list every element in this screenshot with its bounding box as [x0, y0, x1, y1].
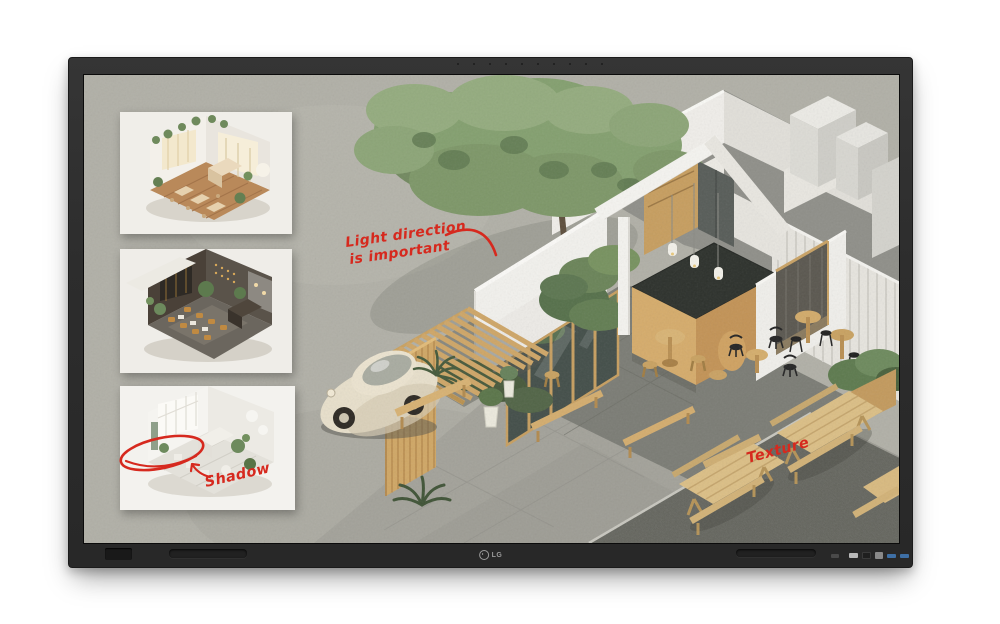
- lg-logo: LG: [479, 550, 503, 560]
- lan-port-icon: [875, 552, 883, 559]
- usb3-port-icon: [900, 554, 909, 558]
- pen-tray-left: [169, 549, 247, 558]
- lg-interactive-display: CAFE: [68, 57, 913, 568]
- thumbnail-white-minimal-interior-render[interactable]: [120, 386, 295, 510]
- pen-tray-right: [736, 549, 816, 557]
- lg-logo-text: LG: [492, 552, 503, 559]
- usb-port-icon: [849, 553, 858, 558]
- power-button[interactable]: [831, 554, 839, 558]
- ir-sensor: [105, 548, 132, 560]
- lg-logo-icon: [479, 550, 489, 560]
- usb3-port-icon: [887, 554, 896, 558]
- speaker-vents: [457, 63, 603, 65]
- thumbnail-warm-cafe-interior-render[interactable]: [120, 112, 292, 234]
- hdmi-port-icon: [862, 552, 871, 559]
- thumbnail-dark-lounge-interior-render[interactable]: [120, 249, 292, 373]
- touch-screen[interactable]: CAFE: [83, 74, 900, 544]
- side-ports: [831, 552, 909, 559]
